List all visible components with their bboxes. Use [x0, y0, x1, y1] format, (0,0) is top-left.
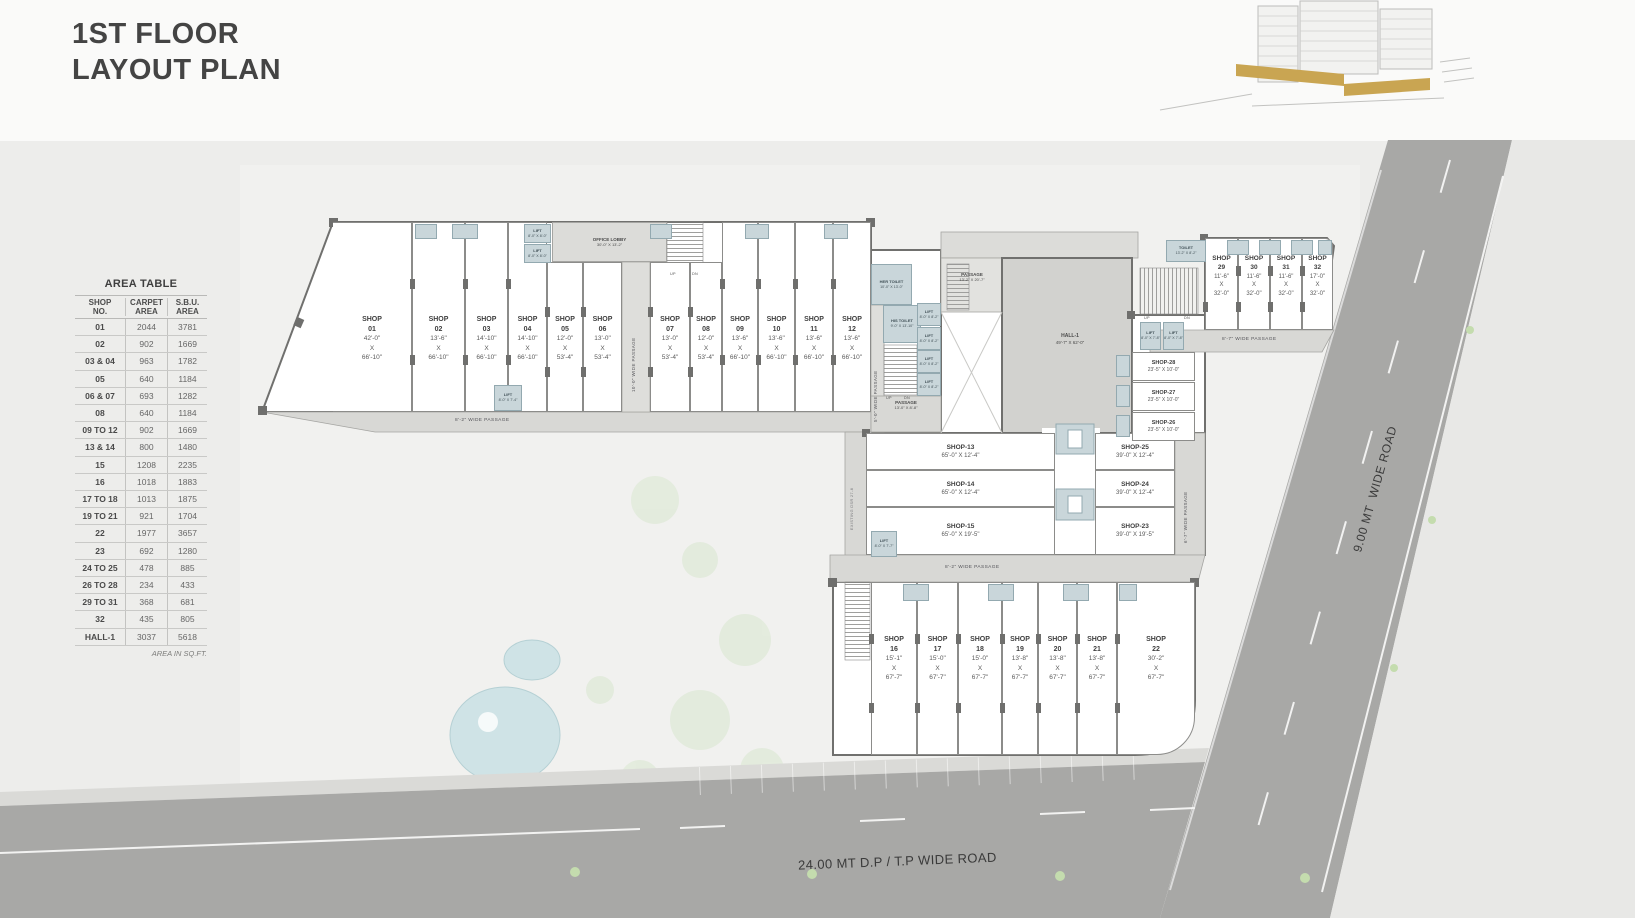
shop-depth: 67'-7" — [1148, 673, 1165, 683]
shop-unit: SHOP 19 13'-8" X 67'-7" — [1002, 582, 1038, 755]
shop-word: SHOP — [593, 315, 613, 325]
shop-width: 14'-10" — [517, 334, 537, 344]
cell-carpet-area: 963 — [125, 353, 167, 369]
shop-label: SHOP 07 13'-0" X 53'-4" — [651, 263, 689, 363]
cell-shop-no: 03 & 04 — [75, 353, 125, 369]
shop-word: SHOP — [1048, 635, 1068, 645]
shop-word: SHOP — [767, 315, 787, 325]
office-lobby-dims: 30'-0" X 13'-2" — [597, 242, 622, 247]
cell-sbu-area: 3657 — [167, 525, 207, 541]
cell-sbu-area: 2235 — [167, 457, 207, 473]
dim-x: X — [1018, 664, 1022, 674]
cell-shop-no: 15 — [75, 457, 125, 473]
stair-up-label: UP — [670, 272, 676, 276]
shop-label: SHOP-28 23'-5" X 10'-0" — [1133, 353, 1194, 380]
shop-width: 13'-8" — [1089, 654, 1106, 664]
shop-word: SHOP — [1277, 255, 1295, 264]
cell-carpet-area: 478 — [125, 560, 167, 576]
cell-carpet-area: 435 — [125, 611, 167, 627]
shop-unit: SHOP 01 42'-0" X 66'-10" — [333, 222, 412, 412]
shop-unit: SHOP 06 13'-0" X 53'-4" — [583, 262, 622, 412]
shop-number: 11 — [810, 325, 817, 335]
shop-label: SHOP 05 12'-0" X 53'-4" — [548, 263, 582, 363]
area-table-footnote: AREA IN SQ.FT. — [75, 649, 207, 658]
cell-sbu-area: 1875 — [167, 491, 207, 507]
cell-sbu-area: 1184 — [167, 371, 207, 387]
stair-dn-label: DN — [904, 396, 910, 400]
shop-label: SHOP-24 39'-0" X 12'-4" — [1096, 471, 1174, 506]
shop-dims: 23'-5" X 10'-0" — [1148, 427, 1180, 434]
toilet-room: TOILET13'-2" X 8'-2" — [1166, 240, 1206, 262]
cell-carpet-area: 800 — [125, 439, 167, 455]
shop-name: SHOP-27 — [1152, 390, 1176, 397]
dim-x: X — [600, 344, 604, 354]
shop-depth: 66'-10" — [842, 353, 862, 363]
cell-shop-no: 26 TO 28 — [75, 577, 125, 593]
cell-carpet-area: 640 — [125, 371, 167, 387]
shop-depth: 32'-0" — [1214, 290, 1229, 299]
dim-x: X — [484, 344, 488, 354]
stair-up-label: UP — [1144, 316, 1150, 320]
shop-label: SHOP-26 23'-5" X 10'-0" — [1133, 413, 1194, 440]
cell-carpet-area: 1208 — [125, 457, 167, 473]
shop-width: 15'-0" — [929, 654, 946, 664]
shop-dims: 65'-0" X 19'-5" — [942, 531, 980, 540]
table-row: 23 692 1280 — [75, 543, 207, 560]
shop-name: SHOP-23 — [1121, 522, 1149, 531]
shop-depth: 67'-7" — [929, 673, 946, 683]
dim-x: X — [774, 344, 778, 354]
toilet-duct — [903, 584, 929, 601]
shop-number: 18 — [976, 645, 984, 655]
shop-number: 06 — [599, 325, 607, 335]
shop-unit: SHOP 10 13'-6" X 66'-10" — [758, 222, 795, 412]
shop-label: SHOP 06 13'-0" X 53'-4" — [584, 263, 621, 363]
cell-shop-no: 23 — [75, 543, 125, 559]
stair-up-label: UP — [886, 396, 892, 400]
toilet-duct — [1259, 240, 1281, 255]
cell-sbu-area: 1184 — [167, 405, 207, 421]
shop-depth: 66'-10" — [730, 353, 750, 363]
toilet-duct — [1318, 240, 1332, 255]
shop-label: SHOP 01 42'-0" X 66'-10" — [333, 223, 411, 363]
shop-word: SHOP — [1010, 635, 1030, 645]
dim-x: X — [1055, 664, 1059, 674]
shop-depth: 66'-10" — [517, 353, 537, 363]
cell-shop-no: 32 — [75, 611, 125, 627]
toilet-duct — [745, 224, 769, 239]
page-title-line1: 1ST FLOOR — [72, 16, 281, 52]
dim-x: X — [1154, 664, 1158, 674]
shop-unit: SHOP-13 65'-0" X 12'-4" — [866, 433, 1055, 470]
existing-note-label: EXISTING DSR 27-8 — [850, 440, 854, 530]
shop-dims: 23'-5" X 10'-0" — [1148, 367, 1180, 374]
table-row: 03 & 04 963 1782 — [75, 353, 207, 370]
shop-unit: SHOP 05 12'-0" X 53'-4" — [547, 262, 583, 412]
cell-carpet-area: 1977 — [125, 525, 167, 541]
shop-name: SHOP-13 — [947, 443, 975, 452]
toilet-duct — [1116, 385, 1130, 407]
cell-sbu-area: 1669 — [167, 336, 207, 352]
shop-number: 21 — [1093, 645, 1101, 655]
page-title-line2: LAYOUT PLAN — [72, 52, 281, 88]
shop-word: SHOP — [928, 635, 948, 645]
his-toilet: HIS TOILET9'-0" X 13'-10" — [883, 305, 921, 343]
shop-name: SHOP-15 — [947, 522, 975, 531]
shop-width: 17'-0" — [1310, 273, 1325, 282]
shop-unit: SHOP 02 13'-6" X 66'-10" — [412, 222, 465, 412]
shop-depth: 53'-4" — [698, 353, 715, 363]
col-header-carpet: CARPET AREA — [125, 298, 167, 316]
cell-carpet-area: 234 — [125, 577, 167, 593]
table-row: 19 TO 21 921 1704 — [75, 508, 207, 525]
shop-width: 11'-6" — [1214, 273, 1229, 282]
shop-word: SHOP — [1308, 255, 1326, 264]
toilet-duct — [415, 224, 437, 239]
table-row: 29 TO 31 368 681 — [75, 594, 207, 611]
shop-label: SHOP 10 13'-6" X 66'-10" — [759, 223, 794, 363]
toilet-duct — [824, 224, 848, 239]
cell-sbu-area: 5618 — [167, 629, 207, 645]
table-row: 05 640 1184 — [75, 371, 207, 388]
cell-carpet-area: 902 — [125, 422, 167, 438]
cell-sbu-area: 433 — [167, 577, 207, 593]
shop-word: SHOP — [1146, 635, 1166, 645]
cell-carpet-area: 1013 — [125, 491, 167, 507]
cell-carpet-area: 640 — [125, 405, 167, 421]
table-row: 13 & 14 800 1480 — [75, 439, 207, 456]
shop-word: SHOP — [429, 315, 449, 325]
shop-label: SHOP-23 39'-0" X 19'-5" — [1096, 508, 1174, 554]
shop-width: 30'-2" — [1148, 654, 1165, 664]
lift-room: LIFT8'-0" X 8'-2" — [917, 303, 941, 326]
shop-depth: 67'-7" — [972, 673, 989, 683]
dim-x: X — [935, 664, 939, 674]
wide-passage-6-7-label: 6'-7" WIDE PASSAGE — [1183, 448, 1188, 543]
lift-room: LIFT8'-0" X 8'-0" — [524, 224, 551, 243]
cell-sbu-area: 681 — [167, 594, 207, 610]
cell-sbu-area: 1782 — [167, 353, 207, 369]
col-header-shop-no: SHOP NO. — [75, 298, 125, 316]
hall-1-label: HALL-1 49'-7" X 62'-0" — [1030, 333, 1110, 346]
shop-label: SHOP 12 13'-6" X 66'-10" — [834, 223, 870, 363]
shop-depth: 53'-4" — [594, 353, 611, 363]
toilet-duct — [1119, 584, 1137, 601]
shop-word: SHOP — [842, 315, 862, 325]
shop-width: 13'-0" — [662, 334, 679, 344]
table-row: 02 902 1669 — [75, 336, 207, 353]
shop-width: 15'-1" — [886, 654, 903, 664]
table-row: 24 TO 25 478 885 — [75, 560, 207, 577]
shop-unit: SHOP 17 15'-0" X 67'-7" — [917, 582, 958, 755]
dim-x: X — [1284, 281, 1288, 290]
shop-unit: SHOP-24 39'-0" X 12'-4" — [1095, 470, 1175, 507]
shop-depth: 32'-0" — [1310, 290, 1325, 299]
shop-number: 22 — [1152, 645, 1160, 655]
shop-number: 20 — [1054, 645, 1062, 655]
cell-shop-no: 22 — [75, 525, 125, 541]
shop-number: 10 — [773, 325, 781, 335]
shop-width: 15'-0" — [972, 654, 989, 664]
stair-dn-label: DN — [692, 272, 698, 276]
shop-word: SHOP — [555, 315, 575, 325]
shop-dims: 23'-5" X 10'-0" — [1148, 397, 1180, 404]
shop-number: 12 — [848, 325, 856, 335]
dim-x: X — [1095, 664, 1099, 674]
shop-dims: 39'-0" X 19'-5" — [1116, 531, 1154, 540]
shop-label: SHOP 09 13'-6" X 66'-10" — [723, 223, 757, 363]
shop-width: 12'-0" — [698, 334, 715, 344]
shop-number: 29 — [1218, 264, 1225, 273]
shop-unit: SHOP 03 14'-10" X 66'-10" — [465, 222, 508, 412]
shop-depth: 32'-0" — [1278, 290, 1293, 299]
cell-sbu-area: 1883 — [167, 474, 207, 490]
shop-label: SHOP 03 14'-10" X 66'-10" — [466, 223, 507, 363]
shop-width: 13'-6" — [806, 334, 823, 344]
toilet-duct — [650, 224, 672, 239]
dim-x: X — [1315, 281, 1319, 290]
wide-passage-87-label: 8'-7" WIDE PASSAGE — [1222, 337, 1277, 342]
toilet-duct — [1116, 415, 1130, 437]
lift-room: LIFT8'-0" X 8'-2" — [917, 350, 941, 373]
cell-carpet-area: 692 — [125, 543, 167, 559]
col-header-sbu: S.B.U. AREA — [167, 298, 207, 316]
cell-sbu-area: 885 — [167, 560, 207, 576]
passage-b-label: PASSAGE13'-0" X 8'-8" — [878, 400, 934, 410]
shop-number: 30 — [1250, 264, 1257, 273]
table-row: 15 1208 2235 — [75, 457, 207, 474]
area-table-header: SHOP NO. CARPET AREA S.B.U. AREA — [75, 295, 207, 319]
dim-x: X — [704, 344, 708, 354]
shop-width: 13'-6" — [768, 334, 785, 344]
shop-number: 03 — [483, 325, 491, 335]
cell-shop-no: HALL-1 — [75, 629, 125, 645]
shop-label: SHOP 02 13'-6" X 66'-10" — [413, 223, 464, 363]
wide-passage-10-label: 10'-0" WIDE PASSAGE — [631, 300, 636, 392]
shop-unit: SHOP 12 13'-6" X 66'-10" — [833, 222, 871, 412]
toilet-duct — [1116, 355, 1130, 377]
lift-room: LIFT8'-0" X 7'-8" — [1140, 322, 1161, 350]
dim-x: X — [668, 344, 672, 354]
shop-dims: 39'-0" X 12'-4" — [1116, 489, 1154, 498]
shop-unit: SHOP 07 13'-0" X 53'-4" — [650, 262, 690, 412]
page-title: 1ST FLOOR LAYOUT PLAN — [72, 16, 281, 88]
shop-name: SHOP-24 — [1121, 480, 1149, 489]
shop-depth: 66'-10" — [476, 353, 496, 363]
shop-number: 09 — [736, 325, 744, 335]
shop-word: SHOP — [696, 315, 716, 325]
dim-x: X — [978, 664, 982, 674]
shop-unit: SHOP 21 13'-8" X 67'-7" — [1077, 582, 1117, 755]
dim-x: X — [436, 344, 440, 354]
cell-shop-no: 17 TO 18 — [75, 491, 125, 507]
shop-word: SHOP — [884, 635, 904, 645]
shop-word: SHOP — [518, 315, 538, 325]
cell-shop-no: 01 — [75, 319, 125, 335]
area-table-body: 01 2044 3781 02 902 1669 03 & 04 963 178… — [75, 319, 207, 646]
shop-depth: 67'-7" — [1049, 673, 1066, 683]
dim-x: X — [812, 344, 816, 354]
shop-unit: SHOP 08 12'-0" X 53'-4" — [690, 262, 722, 412]
cell-carpet-area: 1018 — [125, 474, 167, 490]
shop-unit: SHOP 18 15'-0" X 67'-7" — [958, 582, 1002, 755]
shop-name: SHOP-14 — [947, 480, 975, 489]
her-toilet: HER TOILET10'-0" X 13'-0" — [871, 264, 912, 305]
cell-shop-no: 13 & 14 — [75, 439, 125, 455]
shop-number: 16 — [890, 645, 898, 655]
cell-shop-no: 08 — [75, 405, 125, 421]
shop-width: 13'-6" — [732, 334, 749, 344]
cell-carpet-area: 368 — [125, 594, 167, 610]
shop-width: 42'-0" — [364, 334, 381, 344]
floor-plan-page: 1ST FLOOR LAYOUT PLAN AREA TABLE SHOP NO… — [0, 0, 1635, 918]
shop-number: 01 — [368, 325, 376, 335]
cell-shop-no: 09 TO 12 — [75, 422, 125, 438]
shop-word: SHOP — [1212, 255, 1230, 264]
shop-unit: SHOP-23 39'-0" X 19'-5" — [1095, 507, 1175, 555]
shop-width: 13'-8" — [1012, 654, 1029, 664]
lift-room: LIFT8'-0" X 8'-0" — [524, 244, 551, 263]
shop-unit: SHOP-27 23'-5" X 10'-0" — [1132, 382, 1195, 411]
table-row: 06 & 07 693 1282 — [75, 388, 207, 405]
shop-width: 13'-6" — [430, 334, 447, 344]
cell-shop-no: 16 — [75, 474, 125, 490]
shop-name: SHOP-28 — [1152, 360, 1176, 367]
shop-label: SHOP-27 23'-5" X 10'-0" — [1133, 383, 1194, 410]
cell-sbu-area: 1480 — [167, 439, 207, 455]
shop-width: 11'-6" — [1279, 273, 1294, 282]
wide-passage-5-label: 5'-0" WIDE PASSAGE — [873, 332, 878, 422]
shop-width: 11'-6" — [1247, 273, 1262, 282]
shop-unit: SHOP 22 30'-2" X 67'-7" — [1117, 582, 1195, 755]
shop-word: SHOP — [362, 315, 382, 325]
shop-name: SHOP-25 — [1121, 443, 1149, 452]
toilet-duct — [1227, 240, 1249, 255]
shop-number: 05 — [561, 325, 569, 335]
table-row: 17 TO 18 1013 1875 — [75, 491, 207, 508]
shop-depth: 53'-4" — [662, 353, 679, 363]
table-row: 08 640 1184 — [75, 405, 207, 422]
shop-number: 02 — [435, 325, 443, 335]
cell-sbu-area: 1669 — [167, 422, 207, 438]
dim-x: X — [563, 344, 567, 354]
shop-word: SHOP — [970, 635, 990, 645]
shop-number: 17 — [934, 645, 942, 655]
table-row: 26 TO 28 234 433 — [75, 577, 207, 594]
lift-room: LIFT8'-0" X 7'-7" — [871, 531, 897, 557]
shop-number: 07 — [666, 325, 674, 335]
shop-word: SHOP — [730, 315, 750, 325]
dim-x: X — [370, 344, 374, 354]
cell-sbu-area: 805 — [167, 611, 207, 627]
toilet-duct — [1063, 584, 1089, 601]
wide-passage-82a-label: 8'-2" WIDE PASSAGE — [455, 418, 510, 423]
shop-number: 31 — [1282, 264, 1289, 273]
table-row: 09 TO 12 902 1669 — [75, 422, 207, 439]
cell-sbu-area: 1282 — [167, 388, 207, 404]
toilet-duct — [988, 584, 1014, 601]
lift-room: LIFT8'-0" X 7'-4" — [494, 385, 522, 411]
shop-dims: 39'-0" X 12'-4" — [1116, 452, 1154, 461]
shop-word: SHOP — [660, 315, 680, 325]
shop-dims: 65'-0" X 12'-4" — [942, 489, 980, 498]
lift-room: LIFT8'-0" X 7'-8" — [1163, 322, 1184, 350]
shop-width: 14'-10" — [476, 334, 496, 344]
dim-x: X — [738, 344, 742, 354]
shop-word: SHOP — [1087, 635, 1107, 645]
shop-number: 08 — [702, 325, 710, 335]
dim-x: X — [1219, 281, 1223, 290]
cell-sbu-area: 1280 — [167, 543, 207, 559]
cell-shop-no: 05 — [75, 371, 125, 387]
shop-width: 12'-0" — [557, 334, 574, 344]
shop-depth: 66'-10" — [766, 353, 786, 363]
shop-label: SHOP 11 13'-6" X 66'-10" — [796, 223, 832, 363]
dim-x: X — [1252, 281, 1256, 290]
table-row: 22 1977 3657 — [75, 525, 207, 542]
shop-unit: SHOP 11 13'-6" X 66'-10" — [795, 222, 833, 412]
lift-room: LIFT8'-0" X 8'-2" — [917, 327, 941, 350]
shop-number: 04 — [524, 325, 532, 335]
shop-depth: 67'-7" — [886, 673, 903, 683]
cell-shop-no: 24 TO 25 — [75, 560, 125, 576]
cell-shop-no: 06 & 07 — [75, 388, 125, 404]
shop-depth: 67'-7" — [1089, 673, 1106, 683]
table-row: 01 2044 3781 — [75, 319, 207, 336]
cell-sbu-area: 3781 — [167, 319, 207, 335]
shop-unit: SHOP-14 65'-0" X 12'-4" — [866, 470, 1055, 507]
shop-label: SHOP-14 65'-0" X 12'-4" — [867, 471, 1054, 506]
lift-room: LIFT8'-0" X 8'-2" — [917, 373, 941, 396]
hall-dims: 49'-7" X 62'-0" — [1030, 340, 1110, 347]
shop-word: SHOP — [477, 315, 497, 325]
cell-carpet-area: 3037 — [125, 629, 167, 645]
shop-word: SHOP — [1245, 255, 1263, 264]
shop-depth: 66'-10" — [362, 353, 382, 363]
shop-unit: SHOP 20 13'-8" X 67'-7" — [1038, 582, 1077, 755]
area-table: AREA TABLE SHOP NO. CARPET AREA S.B.U. A… — [75, 278, 207, 658]
table-row: HALL-1 3037 5618 — [75, 629, 207, 646]
shop-width: 13'-8" — [1049, 654, 1066, 664]
shop-depth: 53'-4" — [557, 353, 574, 363]
shop-unit: SHOP 09 13'-6" X 66'-10" — [722, 222, 758, 412]
shop-unit: SHOP-26 23'-5" X 10'-0" — [1132, 412, 1195, 441]
toilet-duct — [1291, 240, 1313, 255]
shop-label: SHOP 08 12'-0" X 53'-4" — [691, 263, 721, 363]
shop-dims: 65'-0" X 12'-4" — [942, 452, 980, 461]
cell-shop-no: 29 TO 31 — [75, 594, 125, 610]
shop-number: 19 — [1016, 645, 1024, 655]
shop-depth: 66'-10" — [804, 353, 824, 363]
cell-shop-no: 19 TO 21 — [75, 508, 125, 524]
passage-a-label: PASSAGE13'-2" X 20'-7" — [950, 272, 994, 282]
shop-depth: 32'-0" — [1246, 290, 1261, 299]
cell-carpet-area: 921 — [125, 508, 167, 524]
stair-dn-label: DN — [1184, 316, 1190, 320]
area-table-title: AREA TABLE — [75, 278, 207, 290]
shop-width: 13'-6" — [844, 334, 861, 344]
dim-x: X — [892, 664, 896, 674]
shop-unit: SHOP 16 15'-1" X 67'-7" — [871, 582, 917, 755]
dim-x: X — [525, 344, 529, 354]
cell-carpet-area: 693 — [125, 388, 167, 404]
cell-sbu-area: 1704 — [167, 508, 207, 524]
table-row: 16 1018 1883 — [75, 474, 207, 491]
wide-passage-82b-label: 8'-2" WIDE PASSAGE — [945, 565, 1000, 570]
shop-label: SHOP-13 65'-0" X 12'-4" — [867, 434, 1054, 469]
dim-x: X — [850, 344, 854, 354]
shop-depth: 67'-7" — [1012, 673, 1029, 683]
